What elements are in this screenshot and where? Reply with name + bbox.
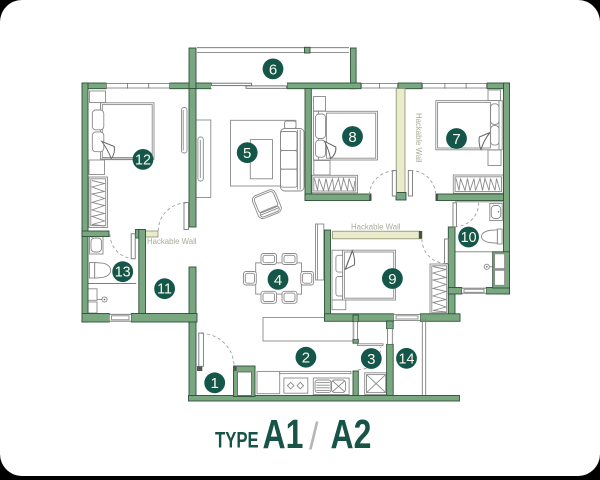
svg-text:7: 7	[452, 131, 460, 148]
svg-text:3: 3	[367, 351, 375, 368]
svg-text:Hackable Wall: Hackable Wall	[414, 113, 423, 163]
svg-text:12: 12	[135, 152, 151, 168]
svg-text:A1: A1	[263, 411, 304, 457]
svg-text:1: 1	[211, 375, 219, 392]
svg-text:2: 2	[302, 350, 310, 367]
svg-text:Hackable Wall: Hackable Wall	[147, 237, 197, 246]
svg-text:10: 10	[461, 230, 477, 246]
svg-text:11: 11	[157, 282, 172, 298]
svg-text:13: 13	[115, 265, 131, 281]
svg-text:Hackable Wall: Hackable Wall	[351, 222, 401, 231]
svg-text:6: 6	[269, 61, 277, 78]
svg-text:/: /	[309, 414, 319, 457]
svg-text:5: 5	[243, 145, 251, 162]
svg-text:TYPE: TYPE	[215, 428, 259, 453]
svg-text:9: 9	[388, 271, 396, 288]
svg-text:14: 14	[399, 351, 415, 367]
svg-text:A2: A2	[331, 411, 372, 457]
svg-text:4: 4	[274, 272, 282, 289]
svg-text:8: 8	[348, 129, 356, 146]
